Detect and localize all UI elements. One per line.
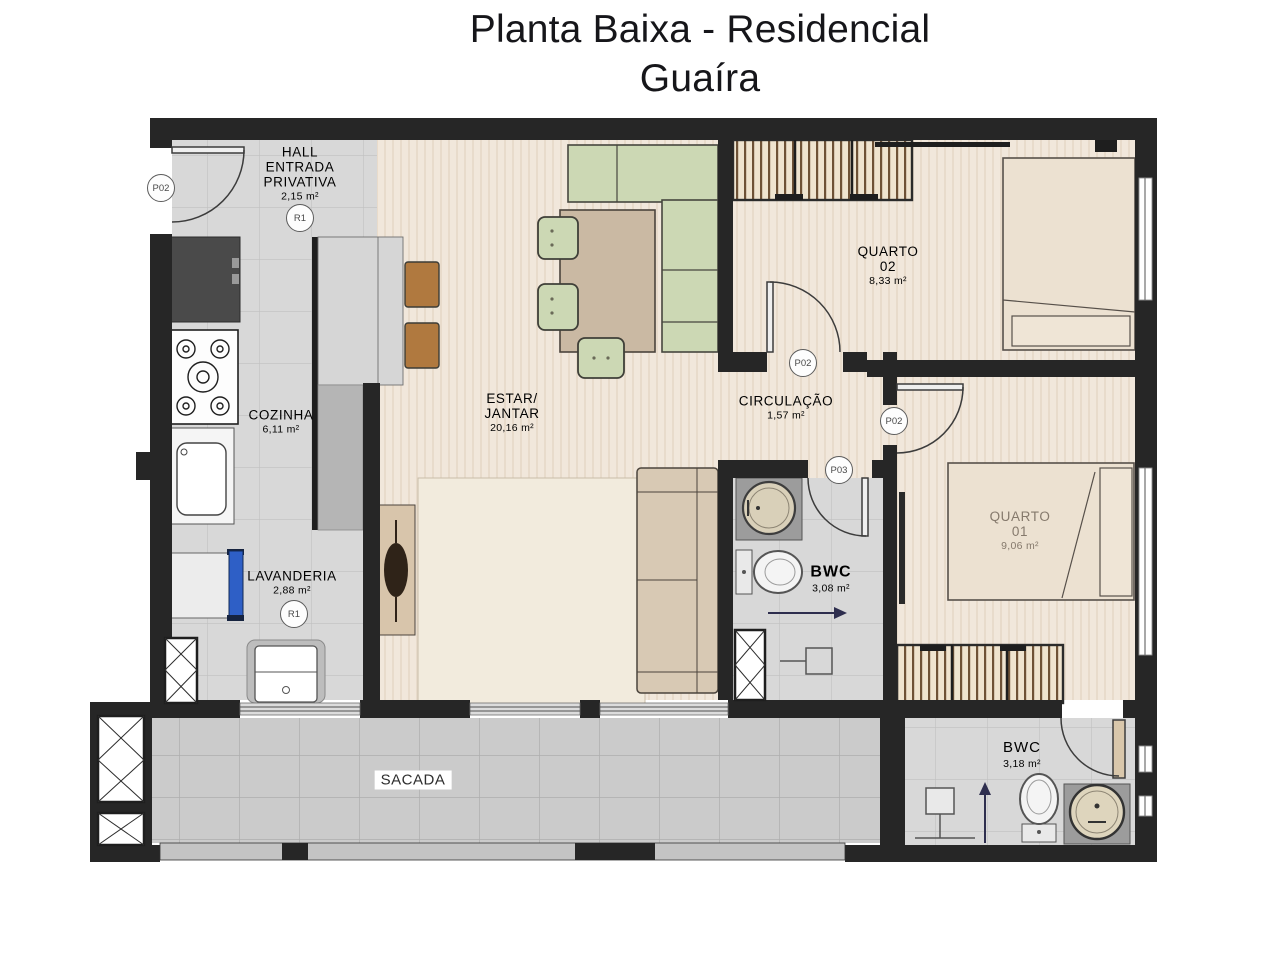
ironing-board xyxy=(229,551,243,619)
quarto02-door-leaf xyxy=(767,282,773,352)
ref-tag-hall: R1 xyxy=(286,204,314,232)
door-tag-entrada: P02 xyxy=(147,174,175,202)
door-tag-quarto01: P02 xyxy=(880,407,908,435)
bwc-door-leaf xyxy=(862,478,868,536)
ref-tag-lavanderia: R1 xyxy=(280,600,308,628)
laundry-cabinet xyxy=(168,553,230,618)
room-label-bwc-servico: BWC 3,18 m² xyxy=(1003,740,1041,770)
room-label-hall: HALL ENTRADA PRIVATIVA 2,15 m² xyxy=(264,145,337,204)
round-sink xyxy=(1070,785,1124,839)
kitchen-sink xyxy=(177,443,226,515)
tv xyxy=(384,543,408,597)
room-label-estar-jantar: ESTAR/ JANTAR 20,16 m² xyxy=(484,391,539,435)
room-label-cozinha: COZINHA 6,11 m² xyxy=(249,408,314,437)
shaft xyxy=(735,630,765,700)
kitchen-peninsula-counter xyxy=(318,237,403,385)
room-label-quarto02: QUARTO 02 8,33 m² xyxy=(858,244,919,288)
balcony-railing xyxy=(160,843,845,860)
room-label-lavanderia: LAVANDERIA 2,88 m² xyxy=(247,569,337,598)
shaft xyxy=(165,638,197,703)
sofa-l-side xyxy=(662,200,718,352)
kitchen-lower-counter xyxy=(318,385,363,530)
wardrobe-quarto02 xyxy=(733,140,912,200)
toilet xyxy=(1020,774,1058,824)
door-tag-bwc: P03 xyxy=(825,456,853,484)
shaft xyxy=(98,716,144,802)
floor-plan-page: Planta Baixa - Residencial Guaíra xyxy=(0,0,1280,954)
wardrobe-quarto01 xyxy=(897,645,1063,703)
bwc-servico-door-leaf xyxy=(1113,720,1125,778)
rug xyxy=(418,478,645,712)
quarto01-door-leaf xyxy=(897,384,963,390)
balcony-floor xyxy=(152,718,880,843)
sofa-l-top xyxy=(568,145,718,202)
door-tag-quarto02: P02 xyxy=(789,349,817,377)
floor-plan-drawing xyxy=(0,0,1280,954)
room-label-bwc-social: BWC 3,08 m² xyxy=(810,563,851,594)
room-label-circulacao: CIRCULAÇÃO 1,57 m² xyxy=(739,394,834,423)
sliding-doors xyxy=(240,703,728,715)
shower-head xyxy=(926,788,954,814)
room-label-quarto01: QUARTO 01 9,06 m² xyxy=(990,509,1051,553)
fridge xyxy=(168,237,240,322)
room-label-sacada: SACADA xyxy=(375,771,452,790)
entrance-door-leaf xyxy=(172,147,244,153)
round-sink xyxy=(743,482,795,534)
